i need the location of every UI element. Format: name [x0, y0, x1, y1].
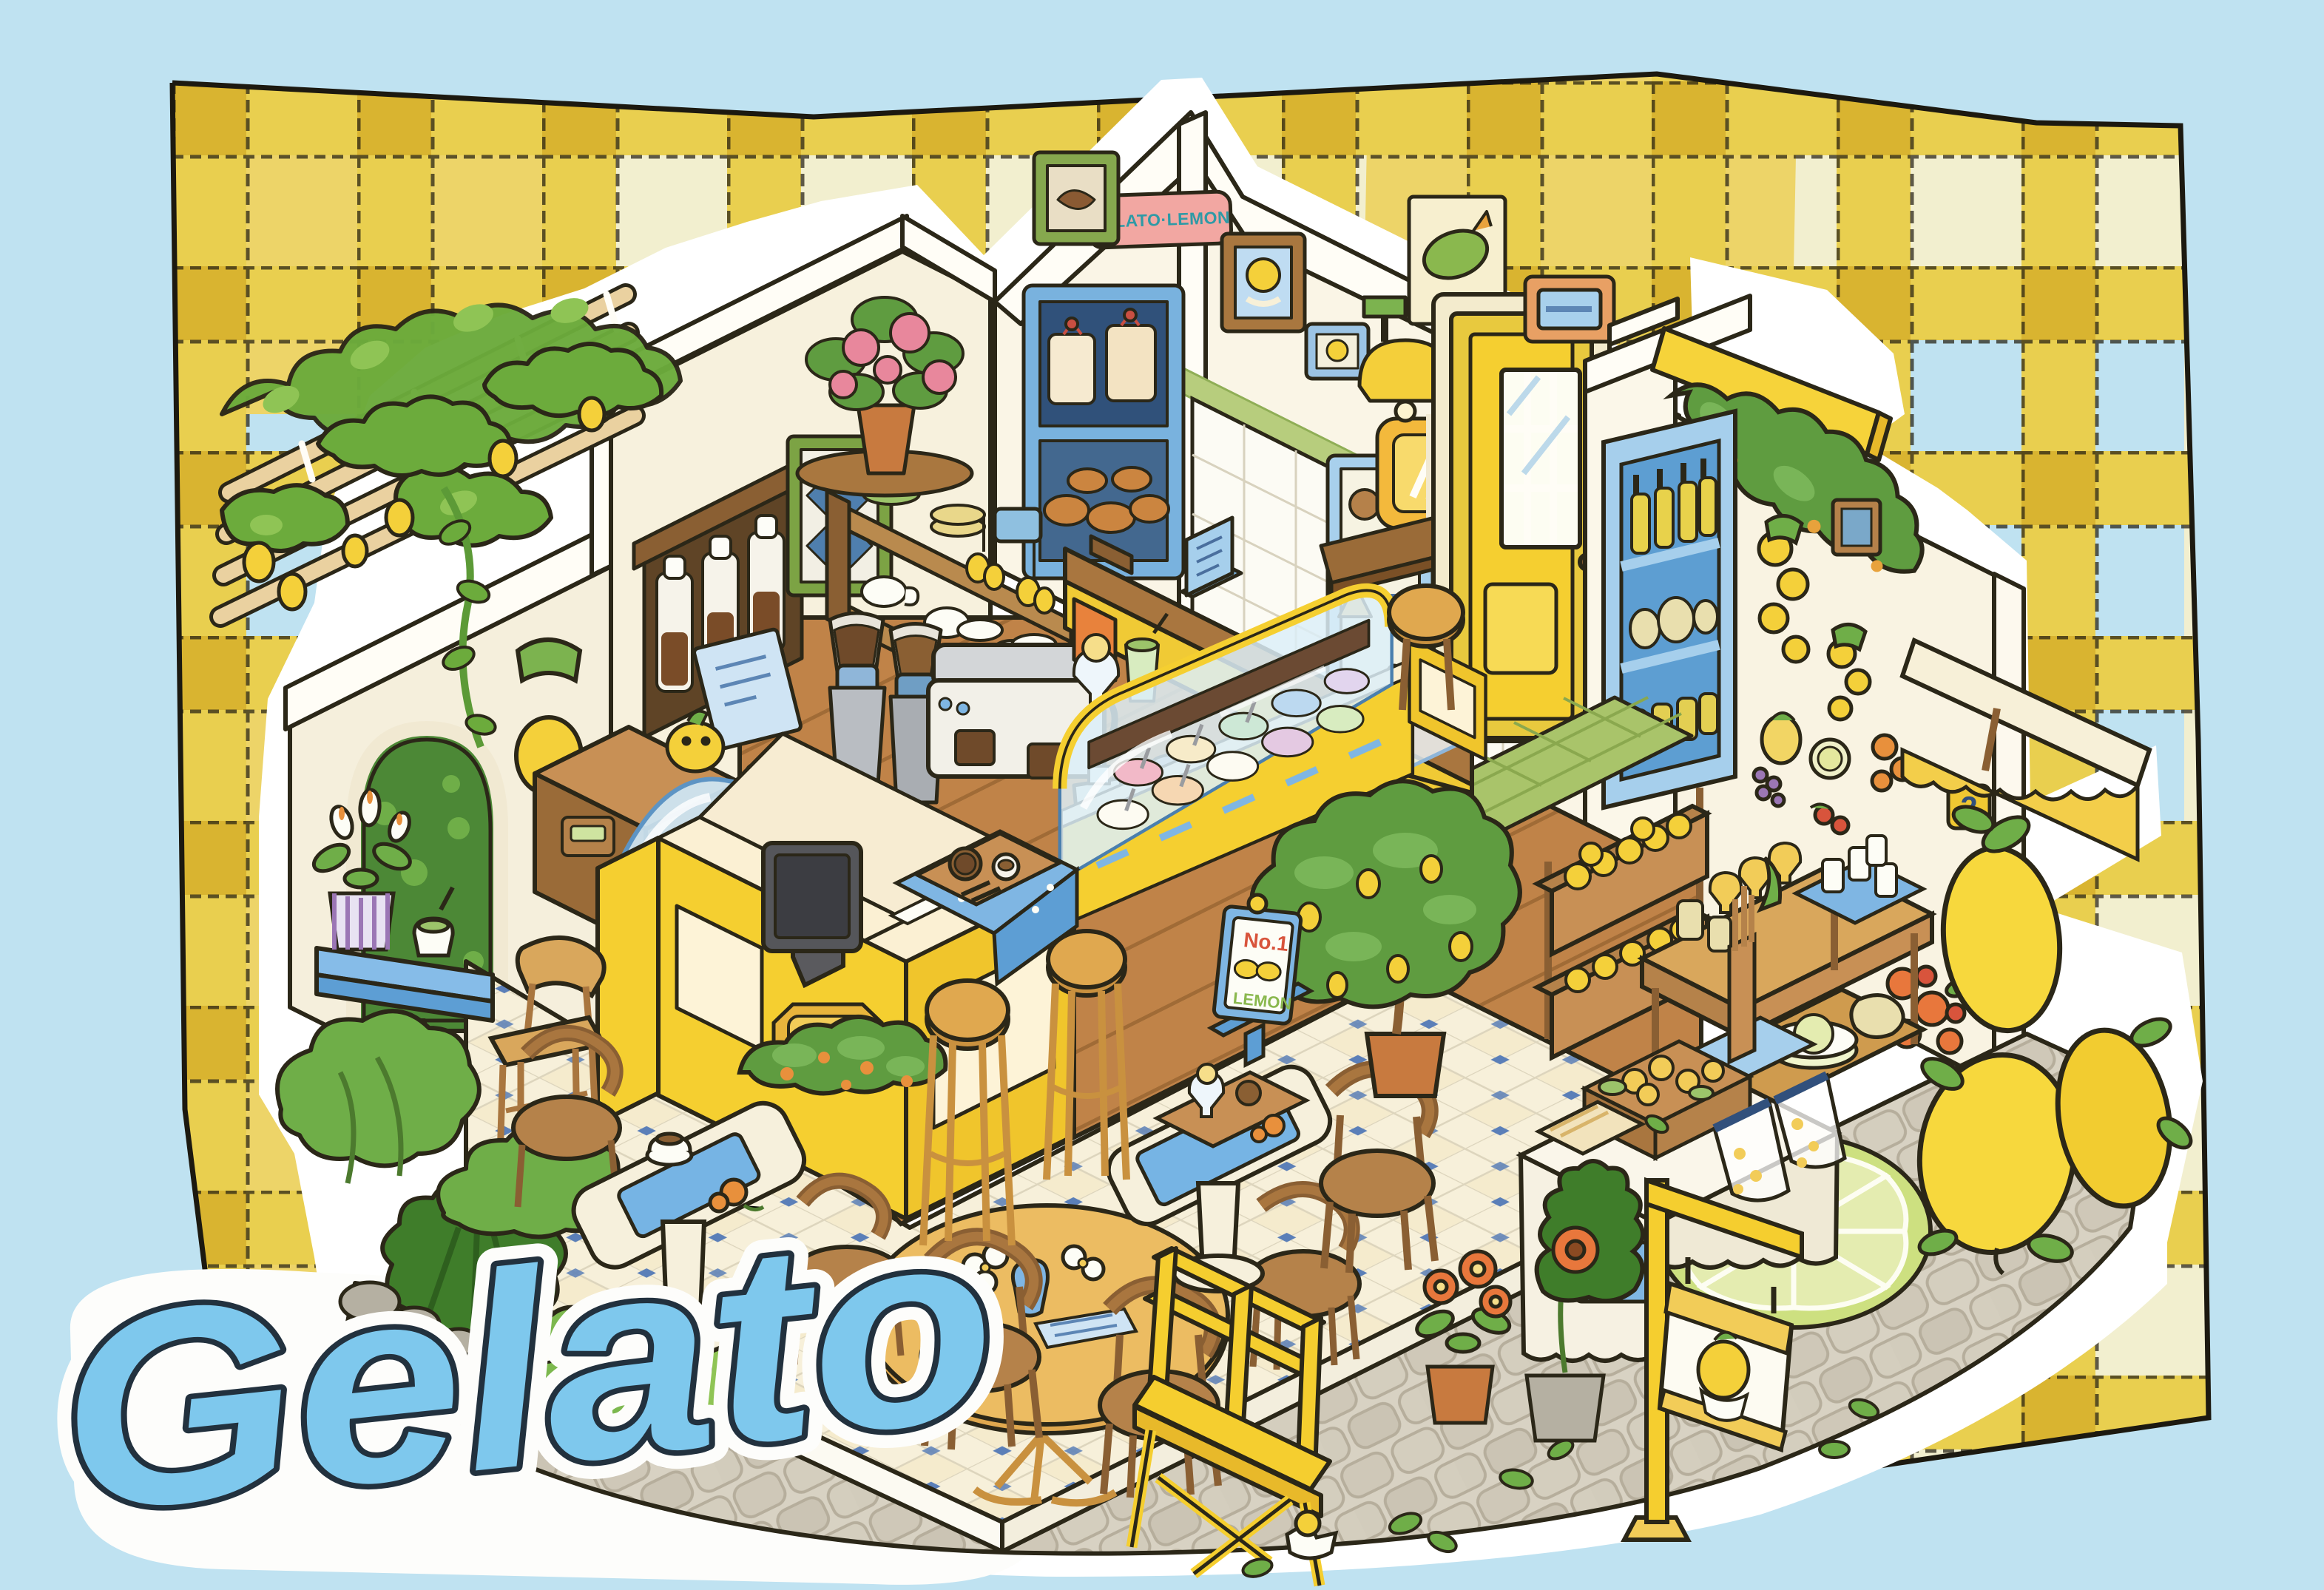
svg-text:No.1: No.1 [1243, 928, 1290, 955]
